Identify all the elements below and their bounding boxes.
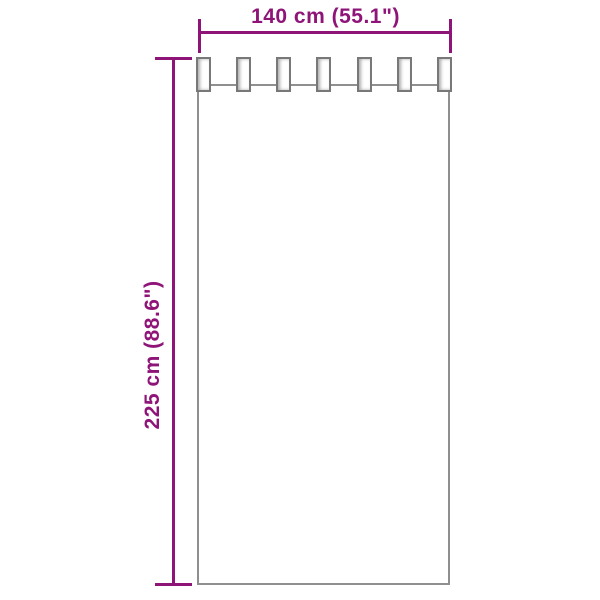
curtain-tab xyxy=(357,57,372,92)
curtain-tab xyxy=(316,57,331,92)
height-dimension-label: 225 cm (88.6") xyxy=(141,235,165,475)
curtain-tab xyxy=(196,57,211,92)
curtain-tab xyxy=(276,57,291,92)
curtain-tab xyxy=(397,57,412,92)
width-dimension-label: 140 cm (55.1") xyxy=(200,5,451,29)
curtain-tab xyxy=(236,57,251,92)
height-dimension-line xyxy=(172,58,175,586)
curtain-dimension-diagram: 140 cm (55.1") 225 cm (88.6") xyxy=(0,0,600,600)
width-dimension-tick-left xyxy=(198,19,201,53)
curtain-panel xyxy=(197,84,450,585)
curtain-tabs xyxy=(196,57,452,92)
width-dimension-tick-right xyxy=(449,19,452,53)
height-dimension-cap-top xyxy=(155,57,192,60)
curtain-tab xyxy=(437,57,452,92)
width-dimension-line xyxy=(199,31,452,34)
height-dimension-cap-bottom xyxy=(155,583,192,586)
